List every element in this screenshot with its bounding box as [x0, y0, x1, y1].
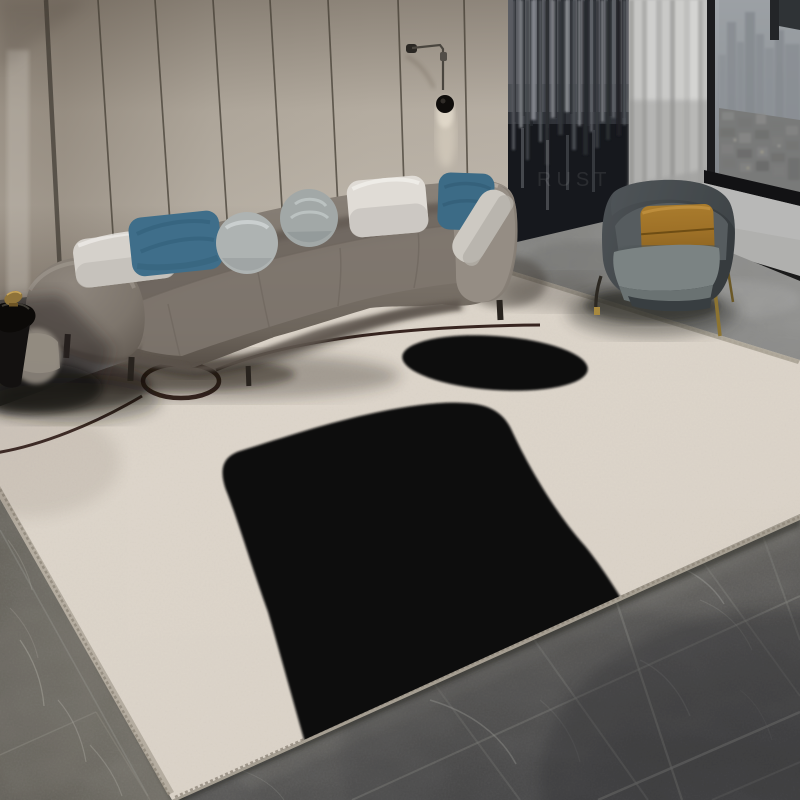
svg-text:RUST: RUST — [537, 169, 611, 191]
